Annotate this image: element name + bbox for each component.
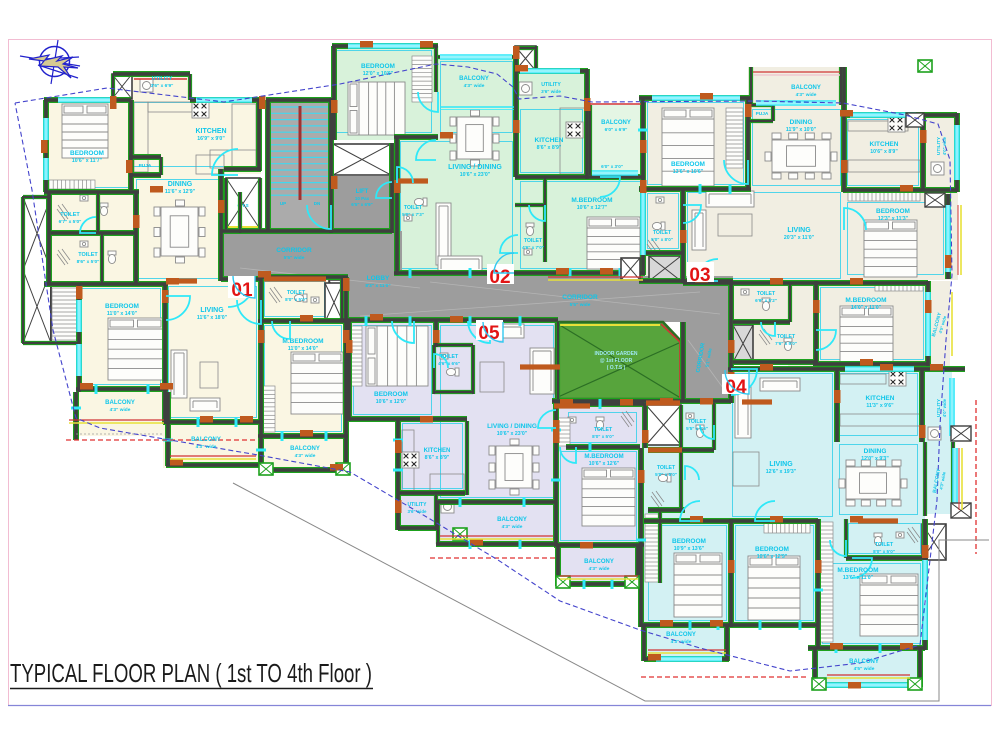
svg-text:6'5" x 6'9": 6'5" x 6'9" (351, 202, 372, 207)
svg-text:BALCONY: BALCONY (290, 446, 320, 452)
svg-text:11'0" x 14'0": 11'0" x 14'0" (288, 346, 319, 352)
svg-text:LIVING: LIVING (200, 307, 224, 314)
svg-text:04: 04 (725, 377, 747, 398)
svg-text:BEDROOM: BEDROOM (361, 63, 395, 70)
svg-text:11'6" x 12'9": 11'6" x 12'9" (165, 189, 196, 195)
svg-text:4'3" wide: 4'3" wide (671, 639, 692, 645)
svg-text:BEDROOM: BEDROOM (671, 161, 705, 168)
svg-text:5'0" x 8'0": 5'0" x 8'0" (655, 472, 677, 477)
svg-text:5'5" wide: 5'5" wide (284, 255, 305, 261)
svg-text:TYPICAL FLOOR PLAN ( 1st TO 4: TYPICAL FLOOR PLAN ( 1st TO 4th Floor ) (10, 658, 372, 688)
svg-text:BEDROOM: BEDROOM (374, 391, 408, 398)
svg-text:KITCHEN: KITCHEN (870, 141, 899, 148)
svg-text:( O.T.S ): ( O.T.S ) (607, 365, 626, 371)
svg-text:INDOOR GARDEN: INDOOR GARDEN (594, 351, 637, 357)
svg-text:10'6" x 23'0": 10'6" x 23'0" (460, 172, 491, 178)
svg-text:4'3" wide: 4'3" wide (796, 92, 817, 98)
svg-text:6'9" x 5'2": 6'9" x 5'2" (755, 298, 777, 303)
svg-text:13'6" x 10'6": 13'6" x 10'6" (673, 169, 704, 175)
svg-text:11'0" x 14'0": 11'0" x 14'0" (107, 311, 138, 317)
svg-text:UP: UP (280, 201, 286, 206)
svg-text:TOILET: TOILET (657, 465, 676, 471)
svg-text:10'6" x 12'0": 10'6" x 12'0" (376, 399, 407, 405)
svg-text:5'5" x 8'5": 5'5" x 8'5" (686, 426, 708, 431)
svg-text:CORRIDOR: CORRIDOR (276, 247, 312, 254)
svg-text:12'0" x 10'6": 12'0" x 10'6" (363, 71, 394, 77)
svg-text:LOBBY: LOBBY (367, 275, 390, 282)
svg-text:M.BEDROOM: M.BEDROOM (837, 567, 878, 574)
svg-text:10'6" x 12'9": 10'6" x 12'9" (757, 554, 788, 560)
svg-text:12'0" x 9'3": 12'0" x 9'3" (861, 456, 889, 462)
svg-text:UTILITY: UTILITY (152, 76, 173, 82)
svg-text:DN: DN (314, 201, 321, 206)
svg-text:BALCONY: BALCONY (497, 517, 527, 523)
svg-text:4'3" wide: 4'3" wide (502, 524, 523, 530)
svg-text:10'6" x 12'6": 10'6" x 12'6" (589, 461, 620, 467)
svg-text:8'0" x 5'0": 8'0" x 5'0" (873, 549, 895, 554)
svg-text:TOILET: TOILET (524, 238, 543, 244)
svg-text:BALCONY: BALCONY (666, 632, 696, 638)
svg-text:4'5" wide: 4'5" wide (854, 666, 875, 672)
svg-text:PUJA: PUJA (756, 111, 769, 117)
svg-text:TOILET: TOILET (404, 205, 423, 211)
svg-text:12'6" x 19'3": 12'6" x 19'3" (766, 469, 797, 475)
svg-text:KITCHEN: KITCHEN (424, 448, 451, 454)
svg-text:UTILITY: UTILITY (408, 502, 428, 508)
svg-text:TOILET: TOILET (777, 334, 796, 340)
svg-text:BEDROOM: BEDROOM (755, 546, 789, 553)
svg-text:3'6" x 6'9": 3'6" x 6'9" (151, 83, 174, 89)
svg-text:8'6" x 8'9": 8'6" x 8'9" (537, 145, 562, 151)
svg-text:13'6" x 11'0": 13'6" x 11'0" (843, 575, 874, 581)
svg-text:TOILET: TOILET (287, 290, 306, 296)
svg-text:11'9" x 10'0": 11'9" x 10'0" (786, 127, 817, 133)
svg-text:02: 02 (489, 267, 510, 288)
svg-text:TOILET: TOILET (78, 252, 98, 258)
svg-text:DINING: DINING (168, 181, 193, 188)
svg-text:6'0" x 6'9": 6'0" x 6'9" (605, 127, 628, 133)
svg-text:LIVING / DINING: LIVING / DINING (487, 423, 537, 430)
svg-text:5'0" x 8'0": 5'0" x 8'0" (651, 237, 673, 242)
svg-text:5'0" x 7'3": 5'0" x 7'3" (402, 212, 424, 217)
svg-text:UTILITY: UTILITY (541, 82, 561, 88)
svg-text:14'0" x 11'0": 14'0" x 11'0" (851, 305, 882, 311)
svg-text:TOILET: TOILET (440, 354, 459, 360)
svg-text:4'3" wide: 4'3" wide (196, 444, 217, 450)
svg-text:11'6" x 18'0": 11'6" x 18'0" (197, 315, 228, 321)
svg-text:8'6" x 8'9": 8'6" x 8'9" (425, 455, 450, 461)
svg-text:BEDROOM: BEDROOM (672, 538, 706, 545)
svg-text:11'3" x 9'6": 11'3" x 9'6" (866, 403, 894, 409)
svg-text:BALCONY: BALCONY (849, 659, 879, 665)
svg-text:BEDROOM: BEDROOM (70, 150, 104, 157)
svg-text:10'6" x 11'7": 10'6" x 11'7" (72, 158, 103, 164)
svg-text:BALCONY: BALCONY (601, 120, 631, 126)
svg-text:BALCONY: BALCONY (105, 400, 135, 406)
svg-text:3'6" wide: 3'6" wide (541, 89, 561, 94)
svg-text:4'0" wide: 4'0" wide (942, 136, 947, 155)
svg-text:M.BEDROOM: M.BEDROOM (845, 297, 886, 304)
svg-text:CORRIDOR: CORRIDOR (562, 294, 598, 301)
svg-text:M.BEDROOM: M.BEDROOM (282, 338, 323, 345)
svg-text:LIVING: LIVING (769, 461, 793, 468)
svg-text:BALCONY: BALCONY (584, 559, 614, 565)
svg-text:KITCHEN: KITCHEN (535, 137, 564, 144)
svg-text:4'3" wide: 4'3" wide (464, 83, 485, 89)
svg-text:TOILET: TOILET (757, 291, 776, 297)
svg-text:DINING: DINING (864, 448, 887, 455)
svg-text:4'3" wide: 4'3" wide (589, 566, 610, 572)
svg-text:7'6" x 5'0": 7'6" x 5'0" (775, 341, 797, 346)
svg-text:12'3" x 11'3": 12'3" x 11'3" (878, 216, 909, 222)
svg-text:16'9" x 9'0": 16'9" x 9'0" (197, 136, 225, 142)
svg-text:8'0" x 5'0": 8'0" x 5'0" (592, 434, 614, 439)
svg-text:8'6" x 5'0": 8'6" x 5'0" (77, 259, 100, 265)
svg-text:10'6" x 8'9": 10'6" x 8'9" (870, 149, 898, 155)
svg-text:20'3" x 11'0": 20'3" x 11'0" (784, 235, 815, 241)
svg-text:5'5" wide: 5'5" wide (570, 302, 591, 308)
svg-text:DINING: DINING (790, 119, 813, 126)
svg-text:03: 03 (689, 265, 710, 286)
svg-text:BALCONY: BALCONY (191, 437, 221, 443)
svg-text:TOILET: TOILET (60, 212, 80, 218)
svg-text:TOILET: TOILET (653, 230, 672, 236)
svg-text:LIFT: LIFT (356, 189, 369, 195)
svg-text:4'0" wide: 4'0" wide (942, 398, 947, 417)
svg-text:8'0" x 5'0": 8'0" x 5'0" (285, 297, 307, 302)
svg-text:10'6" x 23'0": 10'6" x 23'0" (497, 431, 528, 437)
svg-text:BALCONY: BALCONY (791, 85, 821, 91)
svg-text:4'6" x 7'0": 4'6" x 7'0" (522, 245, 544, 250)
svg-text:6'7" x 5'0": 6'7" x 5'0" (59, 219, 82, 225)
svg-text:PUJA: PUJA (139, 163, 152, 169)
svg-text:3'6" wide: 3'6" wide (408, 509, 428, 514)
svg-text:BEDROOM: BEDROOM (876, 208, 910, 215)
svg-text:BALCONY: BALCONY (459, 76, 489, 82)
svg-text:LIVING: LIVING (787, 227, 811, 234)
svg-text:BEDROOM: BEDROOM (105, 303, 139, 310)
svg-text:4'3" wide: 4'3" wide (110, 407, 131, 413)
svg-text:TOILET: TOILET (594, 427, 613, 433)
svg-text:10'9" x 13'6": 10'9" x 13'6" (674, 546, 705, 552)
svg-text:4'3" wide: 4'3" wide (295, 453, 316, 459)
svg-text:6'0" x 3'0": 6'0" x 3'0" (601, 164, 623, 169)
svg-text:KITCHEN: KITCHEN (866, 395, 895, 402)
svg-text:LIVING / DINING: LIVING / DINING (448, 164, 502, 171)
svg-text:@ 1st FLOOR: @ 1st FLOOR (600, 358, 633, 364)
svg-text:TOILET: TOILET (875, 542, 894, 548)
svg-text:10'6" x 12'7": 10'6" x 12'7" (577, 205, 608, 211)
svg-text:KITCHEN: KITCHEN (195, 128, 226, 135)
svg-text:10 Pax: 10 Pax (355, 196, 370, 201)
svg-text:8'3" x 11'0": 8'3" x 11'0" (365, 283, 390, 289)
svg-text:TOILET: TOILET (688, 419, 707, 425)
svg-text:4'6" x 6'6": 4'6" x 6'6" (438, 361, 460, 366)
svg-text:M.BEDROOM: M.BEDROOM (584, 453, 623, 460)
svg-text:M.BEDROOM: M.BEDROOM (571, 197, 612, 204)
